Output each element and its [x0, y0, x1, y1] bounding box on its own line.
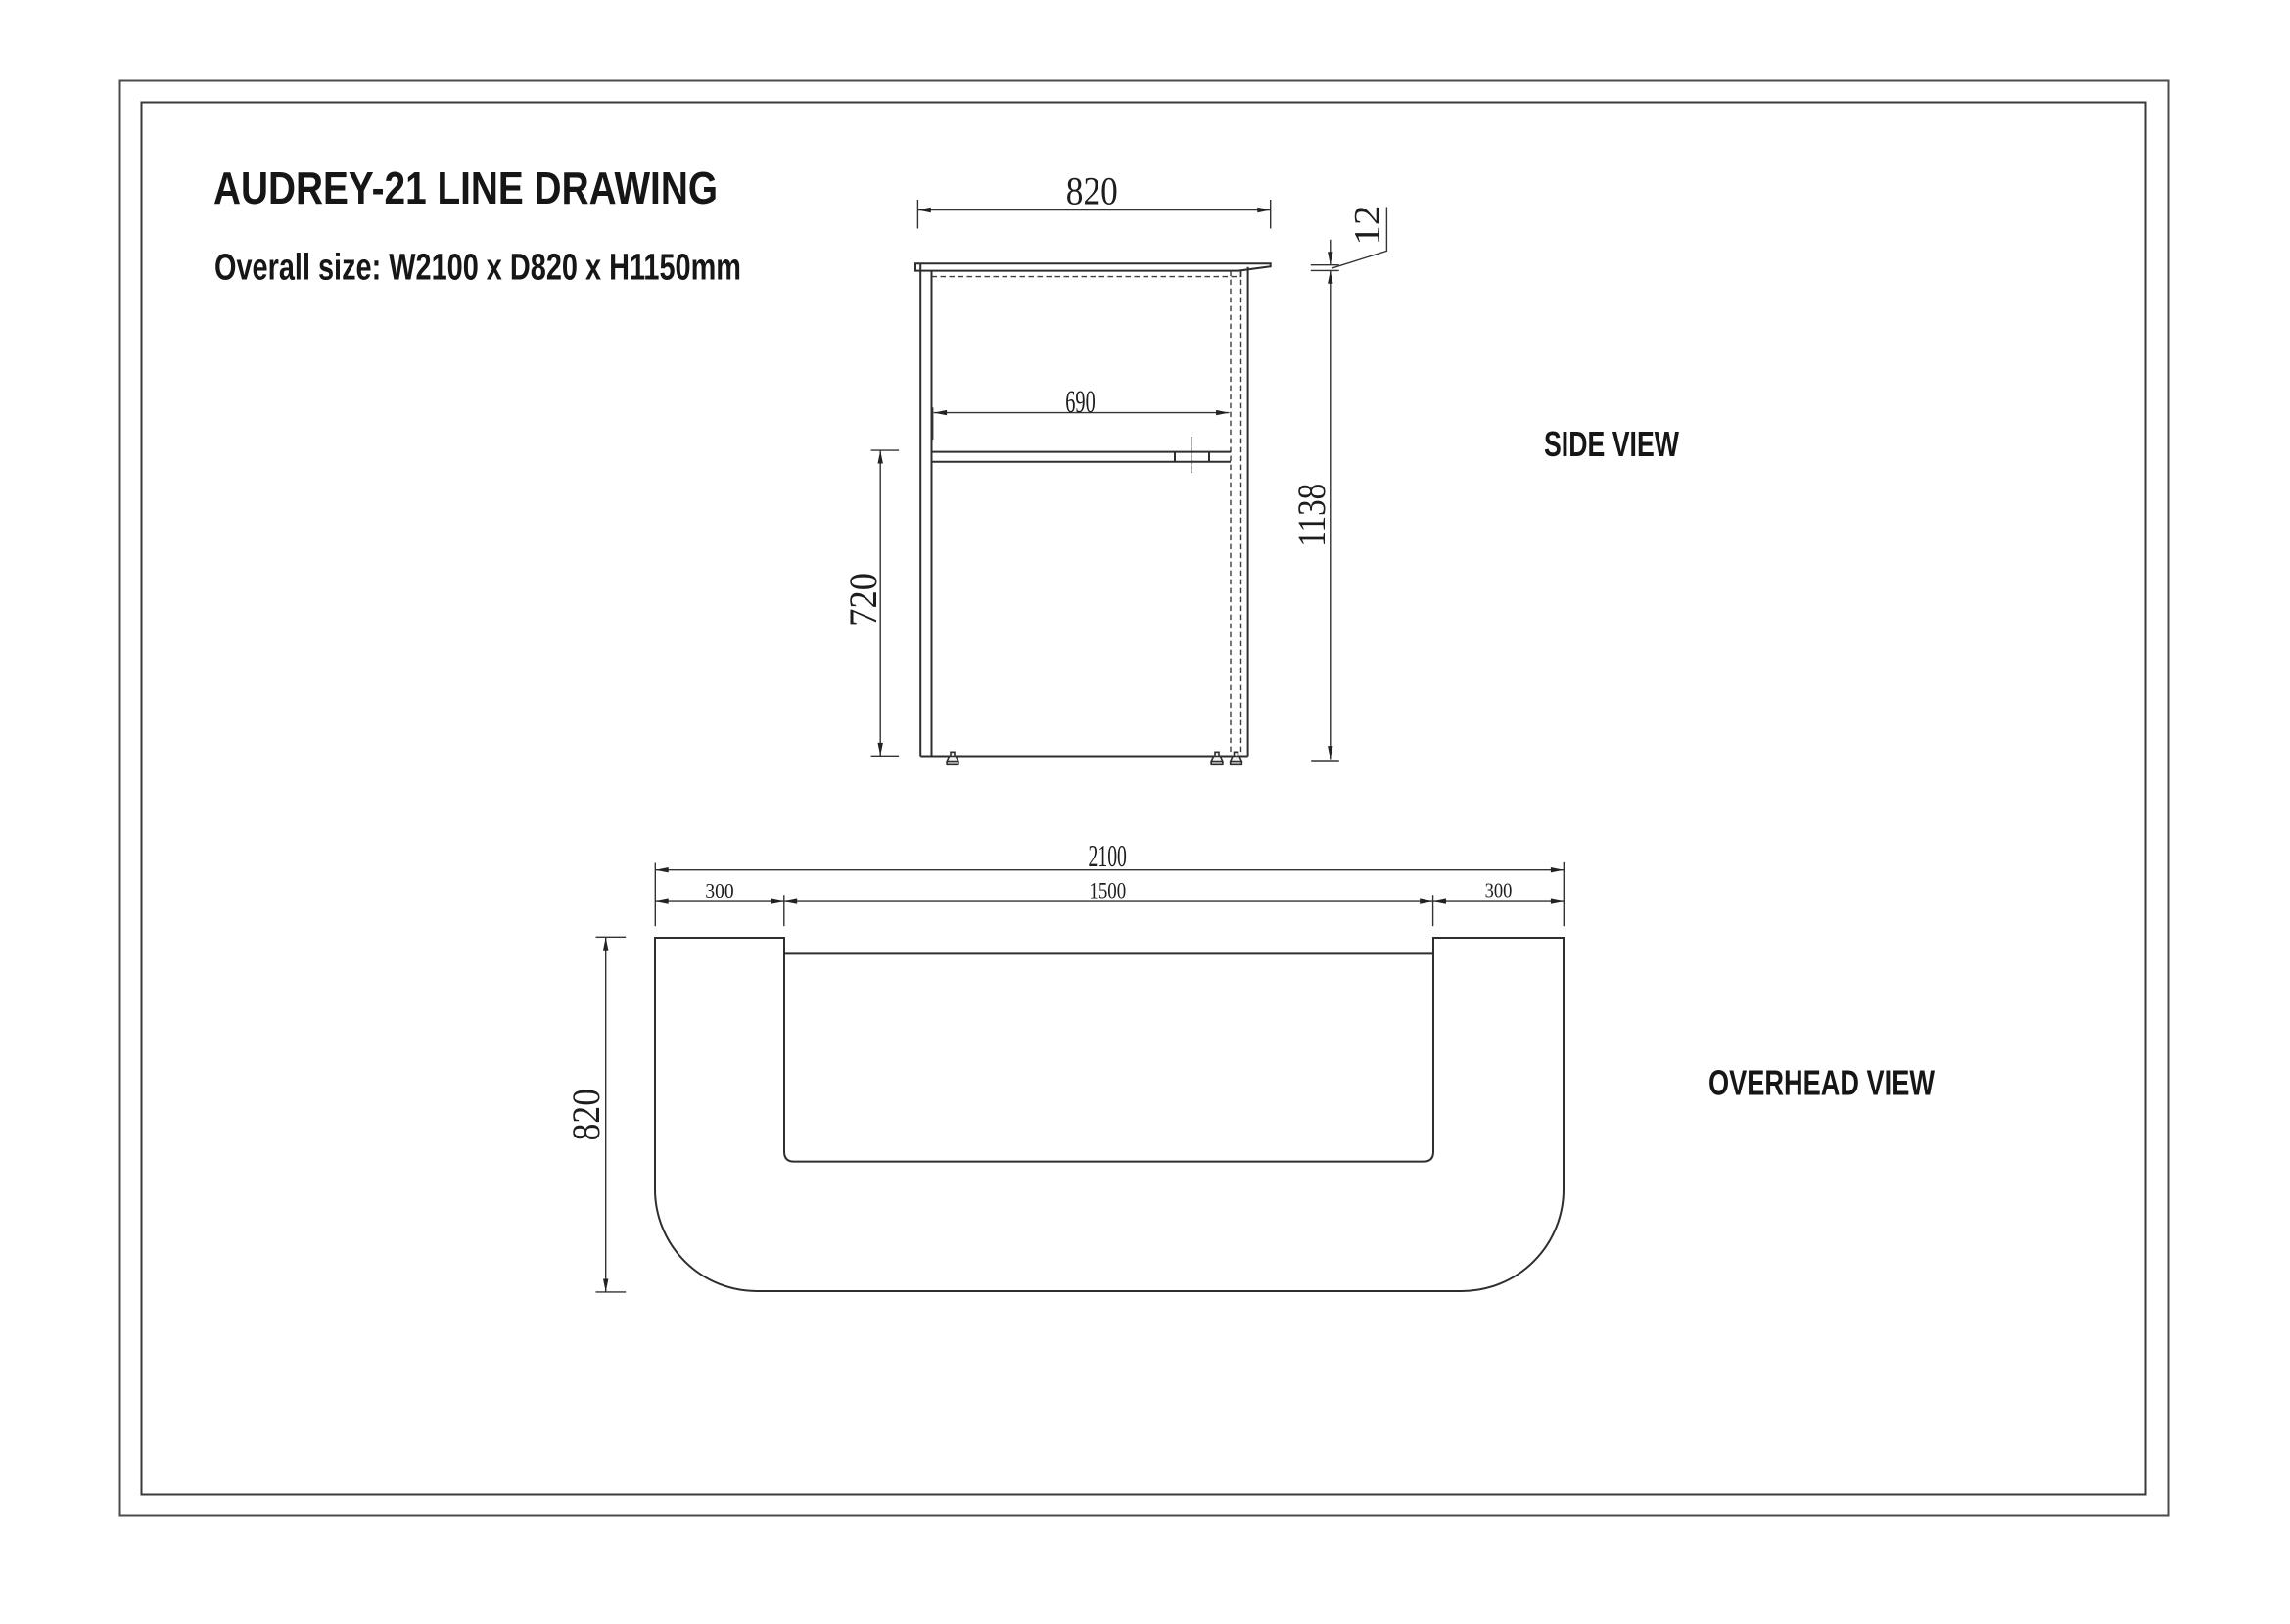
svg-text:SIDE VIEW: SIDE VIEW	[1544, 424, 1679, 464]
svg-text:1138: 1138	[1289, 484, 1333, 547]
svg-text:Overall size: W2100 x D820 x H: Overall size: W2100 x D820 x H1150mm	[214, 247, 741, 288]
svg-text:AUDREY-21 LINE DRAWING: AUDREY-21 LINE DRAWING	[213, 162, 718, 213]
svg-text:300: 300	[705, 879, 733, 903]
svg-text:12: 12	[1348, 206, 1388, 246]
svg-text:820: 820	[564, 1089, 608, 1140]
svg-text:OVERHEAD VIEW: OVERHEAD VIEW	[1708, 1063, 1935, 1103]
svg-text:720: 720	[841, 573, 885, 626]
svg-text:300: 300	[1485, 879, 1513, 903]
svg-text:690: 690	[1065, 385, 1096, 420]
svg-text:820: 820	[1066, 169, 1118, 213]
svg-text:2100: 2100	[1089, 838, 1127, 873]
svg-text:1500: 1500	[1089, 878, 1126, 903]
